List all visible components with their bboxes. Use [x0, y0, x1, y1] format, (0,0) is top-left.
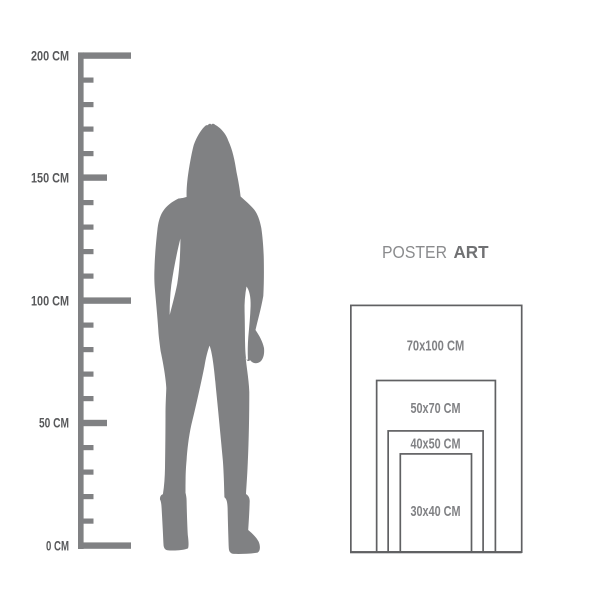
svg-text:POSTER: POSTER — [382, 242, 447, 262]
svg-text:30x40 CM: 30x40 CM — [411, 504, 461, 520]
svg-text:40x50 CM: 40x50 CM — [411, 437, 461, 453]
svg-text:150 CM: 150 CM — [31, 170, 69, 185]
svg-text:50 CM: 50 CM — [39, 416, 69, 431]
svg-text:200 CM: 200 CM — [31, 48, 69, 63]
svg-text:0 CM: 0 CM — [46, 538, 69, 553]
svg-text:100 CM: 100 CM — [31, 293, 69, 308]
svg-text:ART: ART — [454, 242, 489, 262]
svg-text:50x70 CM: 50x70 CM — [411, 401, 461, 417]
svg-text:70x100 CM: 70x100 CM — [407, 339, 465, 355]
